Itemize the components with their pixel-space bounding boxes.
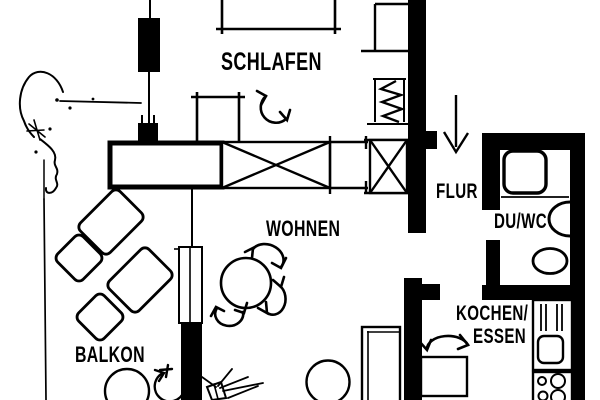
room-label-wohnen: WOHNEN: [266, 218, 340, 240]
chair-arrow-schlafen: [257, 91, 290, 123]
room-label-balkon: BALKON: [75, 344, 145, 366]
sink-unit: [533, 300, 572, 370]
wall-lower-vertical: [404, 278, 422, 400]
floor-plan: SCHLAFEN WOHNEN FLUR DU/WC KOCHEN/ ESSEN…: [0, 0, 600, 400]
wall-pier-small: [138, 123, 158, 143]
scribble: [27, 120, 45, 140]
balcony-edge-line: [44, 199, 46, 400]
tall-cupboard: [362, 327, 400, 400]
wall-stub-kitchen: [420, 284, 440, 300]
wall-duwc-left-lower: [486, 240, 500, 285]
cupboard: [361, 4, 408, 51]
radiator: [367, 79, 408, 124]
shower: [504, 151, 546, 193]
dining-table: [421, 357, 467, 396]
wall-duwc-left-upper: [482, 150, 500, 210]
entrance-arrow: [444, 95, 468, 152]
bed: [216, 0, 341, 34]
round-table-wohnen: [221, 258, 271, 308]
nightstand: [191, 92, 245, 141]
round-table-essen: [307, 361, 350, 400]
wall-pier-top: [138, 18, 160, 72]
wardrobe-x-box: [364, 140, 411, 193]
wall-main-vertical: [408, 0, 426, 233]
plant: [202, 369, 263, 400]
wall-duwc-top: [482, 133, 583, 150]
washbasin: [549, 202, 570, 236]
round-table-balkon: [105, 369, 149, 400]
room-label-schlafen: SCHLAFEN: [221, 50, 322, 75]
room-label-flur: FLUR: [436, 181, 478, 202]
wc: [533, 249, 567, 274]
railing-line: [60, 101, 141, 103]
wall-balcony: [181, 323, 202, 400]
sideboard: [110, 143, 222, 187]
wall-duwc-bottom: [482, 285, 580, 300]
wall-stub-flur: [424, 131, 437, 149]
chair-arrow-kitchen: [419, 335, 468, 350]
wardrobe: [222, 136, 368, 194]
room-label-duwc: DU/WC: [494, 211, 547, 232]
chair-arrow-balkon: [155, 365, 184, 400]
cooktop: [533, 372, 572, 400]
room-label-essen: ESSEN: [473, 326, 526, 347]
room-label-kochen: KOCHEN/: [456, 303, 528, 324]
